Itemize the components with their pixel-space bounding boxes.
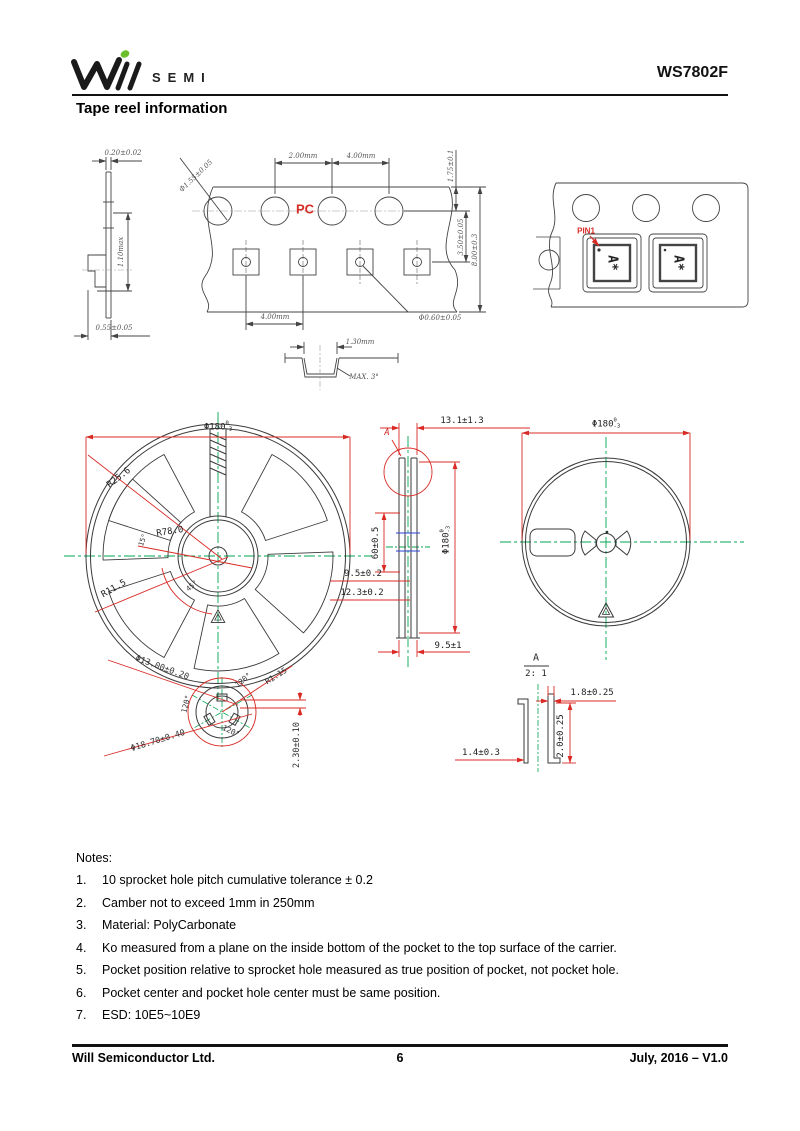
pocket-section-detail [285,342,398,390]
detail-a-marker: A [384,428,389,438]
dim-flange-left: 1.4±0.3 [462,748,500,758]
dim-tape-width: 8.00±0.3 [471,234,479,267]
footer-version: July, 2016 – V1.0 [509,1051,728,1065]
dim-radius-inner: R11.5 [100,578,128,600]
dim-hub-angle-3: 120° [221,723,241,739]
reel-back-view [500,433,744,660]
note-item: 5.Pocket position relative to sprocket h… [76,963,736,977]
dim-hub-outer-diameter: Φ18.70±0.40 [130,728,187,754]
note-item: 2.Camber not to exceed 1mm in 250mm [76,896,736,910]
note-item: 3.Material: PolyCarbonate [76,918,736,932]
dim-angle-spoke: 45° [185,579,200,593]
header-rule [72,94,728,96]
material-pc-label: PC [296,202,314,217]
dim-edge-distance: 1.75±0.1 [447,150,455,183]
page-footer: Will Semiconductor Ltd. 6 July, 2016 – V… [72,1051,728,1065]
dim-pocket-span: 4.00mm [347,152,376,160]
dim-inner-width-1: 9.5±0.2 [344,569,382,579]
tape-top-view [180,150,486,330]
device-tape-view [533,183,748,307]
tape-cross-section [74,157,150,340]
dim-hub-radius: R1.15 [263,666,288,686]
dim-hub-key-width: 2.30±0.10 [292,722,302,768]
dim-pocket-pitch: 4.00mm [261,313,290,321]
note-item: 7.ESD: 10E5~10E9 [76,1008,736,1022]
will-logo [74,49,139,88]
footer-company: Will Semiconductor Ltd. [72,1051,291,1065]
dim-tape-base: 0.55±0.05 [95,324,132,332]
chip-marking-2: A* [671,255,686,271]
notes-section: Notes: 1.10 sprocket hole pitch cumulati… [76,851,736,1031]
note-item: 4.Ko measured from a plane on the inside… [76,941,736,955]
dim-reel-width: 13.1±1.3 [440,416,483,426]
detail-a-label: A [533,653,539,664]
brand-semi-text: SEMI [152,70,212,85]
dim-hub-angle-1: 120° [233,671,253,690]
note-item: 6.Pocket center and pocket hole center m… [76,986,736,1000]
footer-rule [72,1044,728,1047]
dim-bottom-width: 9.5±1 [434,641,461,651]
dim-hub-width: 60±0.5 [371,527,381,560]
dim-hole-to-pocket: 3.50±0.05 [457,218,465,255]
dim-tape-height: 1.10max [117,237,125,267]
dim-hole-pitch: 2.00mm [289,152,318,160]
dim-hub-inner-diameter: Φ13.00±0.20 [134,654,190,683]
dim-tape-thickness: 0.20±0.02 [104,149,141,157]
footer-page-number: 6 [291,1051,510,1065]
dim-radius-outer: R25.6 [105,466,133,491]
dim-radius-mid: R78.0 [156,525,184,539]
dim-hole-diameter: Φ1.55±0.05 [178,158,214,193]
part-number: WS7802F [657,64,728,82]
dim-inner-width-2: 12.3±0.2 [340,588,383,598]
dim-pocket-angle: MAX. 3° [349,373,379,381]
notes-title: Notes: [76,851,736,865]
chip-marking-1: A* [605,255,620,271]
dim-flange-side: 2.0±0.25 [556,714,566,757]
dim-pocket-width: 1.30mm [346,338,375,346]
dim-angle-small: 15° [137,533,149,548]
dim-flange-top: 1.8±0.25 [570,688,613,698]
detail-a-scale: 2: 1 [525,669,547,679]
page-title: Tape reel information [76,100,227,117]
dim-pocket-hole-diameter: Φ0.60±0.05 [419,314,462,322]
dim-hub-angle-2: 120° [179,694,192,714]
datasheet-page: SEMI WS7802F Tape reel information 0.20±… [0,0,800,1131]
pin1-label: PIN1 [577,227,595,236]
dim-reel-side-diameter: Φ1800-3 [441,526,452,554]
reel-side-view [330,423,530,668]
note-item: 1.10 sprocket hole pitch cumulative tole… [76,873,736,887]
dim-reel-front-diameter: Φ1800-3 [204,422,232,433]
dim-reel-back-diameter: Φ1800-3 [592,419,620,430]
reel-front-view [64,412,372,700]
